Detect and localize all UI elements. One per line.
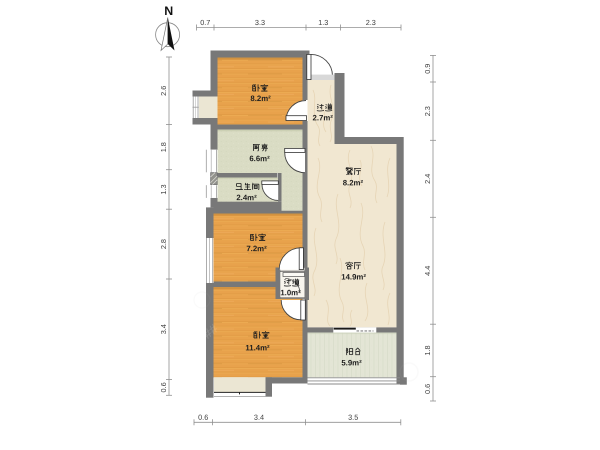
svg-text:1.8: 1.8 <box>159 142 168 152</box>
svg-text:2.4m²: 2.4m² <box>236 193 257 202</box>
svg-text:N: N <box>164 4 173 18</box>
svg-text:2.8: 2.8 <box>159 239 168 249</box>
svg-text:0.9: 0.9 <box>423 64 432 74</box>
svg-text:1.3: 1.3 <box>159 184 168 194</box>
svg-text:2.3: 2.3 <box>366 18 376 27</box>
svg-text:1.0m²: 1.0m² <box>280 288 301 297</box>
svg-text:1.8: 1.8 <box>423 345 432 355</box>
svg-text:0.7: 0.7 <box>200 18 210 27</box>
svg-text:2.7m²: 2.7m² <box>313 113 334 122</box>
svg-text:0.6: 0.6 <box>159 382 168 392</box>
svg-text:0.6: 0.6 <box>423 384 432 394</box>
svg-text:8.2m²: 8.2m² <box>250 94 271 103</box>
svg-text:7.2m²: 7.2m² <box>246 244 267 253</box>
svg-text:2.6: 2.6 <box>159 86 168 96</box>
svg-text:4.4: 4.4 <box>423 266 432 276</box>
svg-text:0.6: 0.6 <box>198 413 208 422</box>
svg-text:5.9m²: 5.9m² <box>341 358 362 367</box>
svg-text:14.9m²: 14.9m² <box>341 272 366 281</box>
svg-text:2.3: 2.3 <box>423 106 432 116</box>
svg-text:8.2m²: 8.2m² <box>343 178 364 187</box>
svg-text:3.3: 3.3 <box>255 18 265 27</box>
svg-text:3.4: 3.4 <box>254 413 264 422</box>
svg-text:3.4: 3.4 <box>159 324 168 334</box>
svg-text:11.4m²: 11.4m² <box>245 343 270 352</box>
svg-text:6.6m²: 6.6m² <box>249 154 270 163</box>
svg-text:3.5: 3.5 <box>348 413 358 422</box>
svg-text:1.3: 1.3 <box>318 18 328 27</box>
svg-text:2.4: 2.4 <box>423 174 432 184</box>
